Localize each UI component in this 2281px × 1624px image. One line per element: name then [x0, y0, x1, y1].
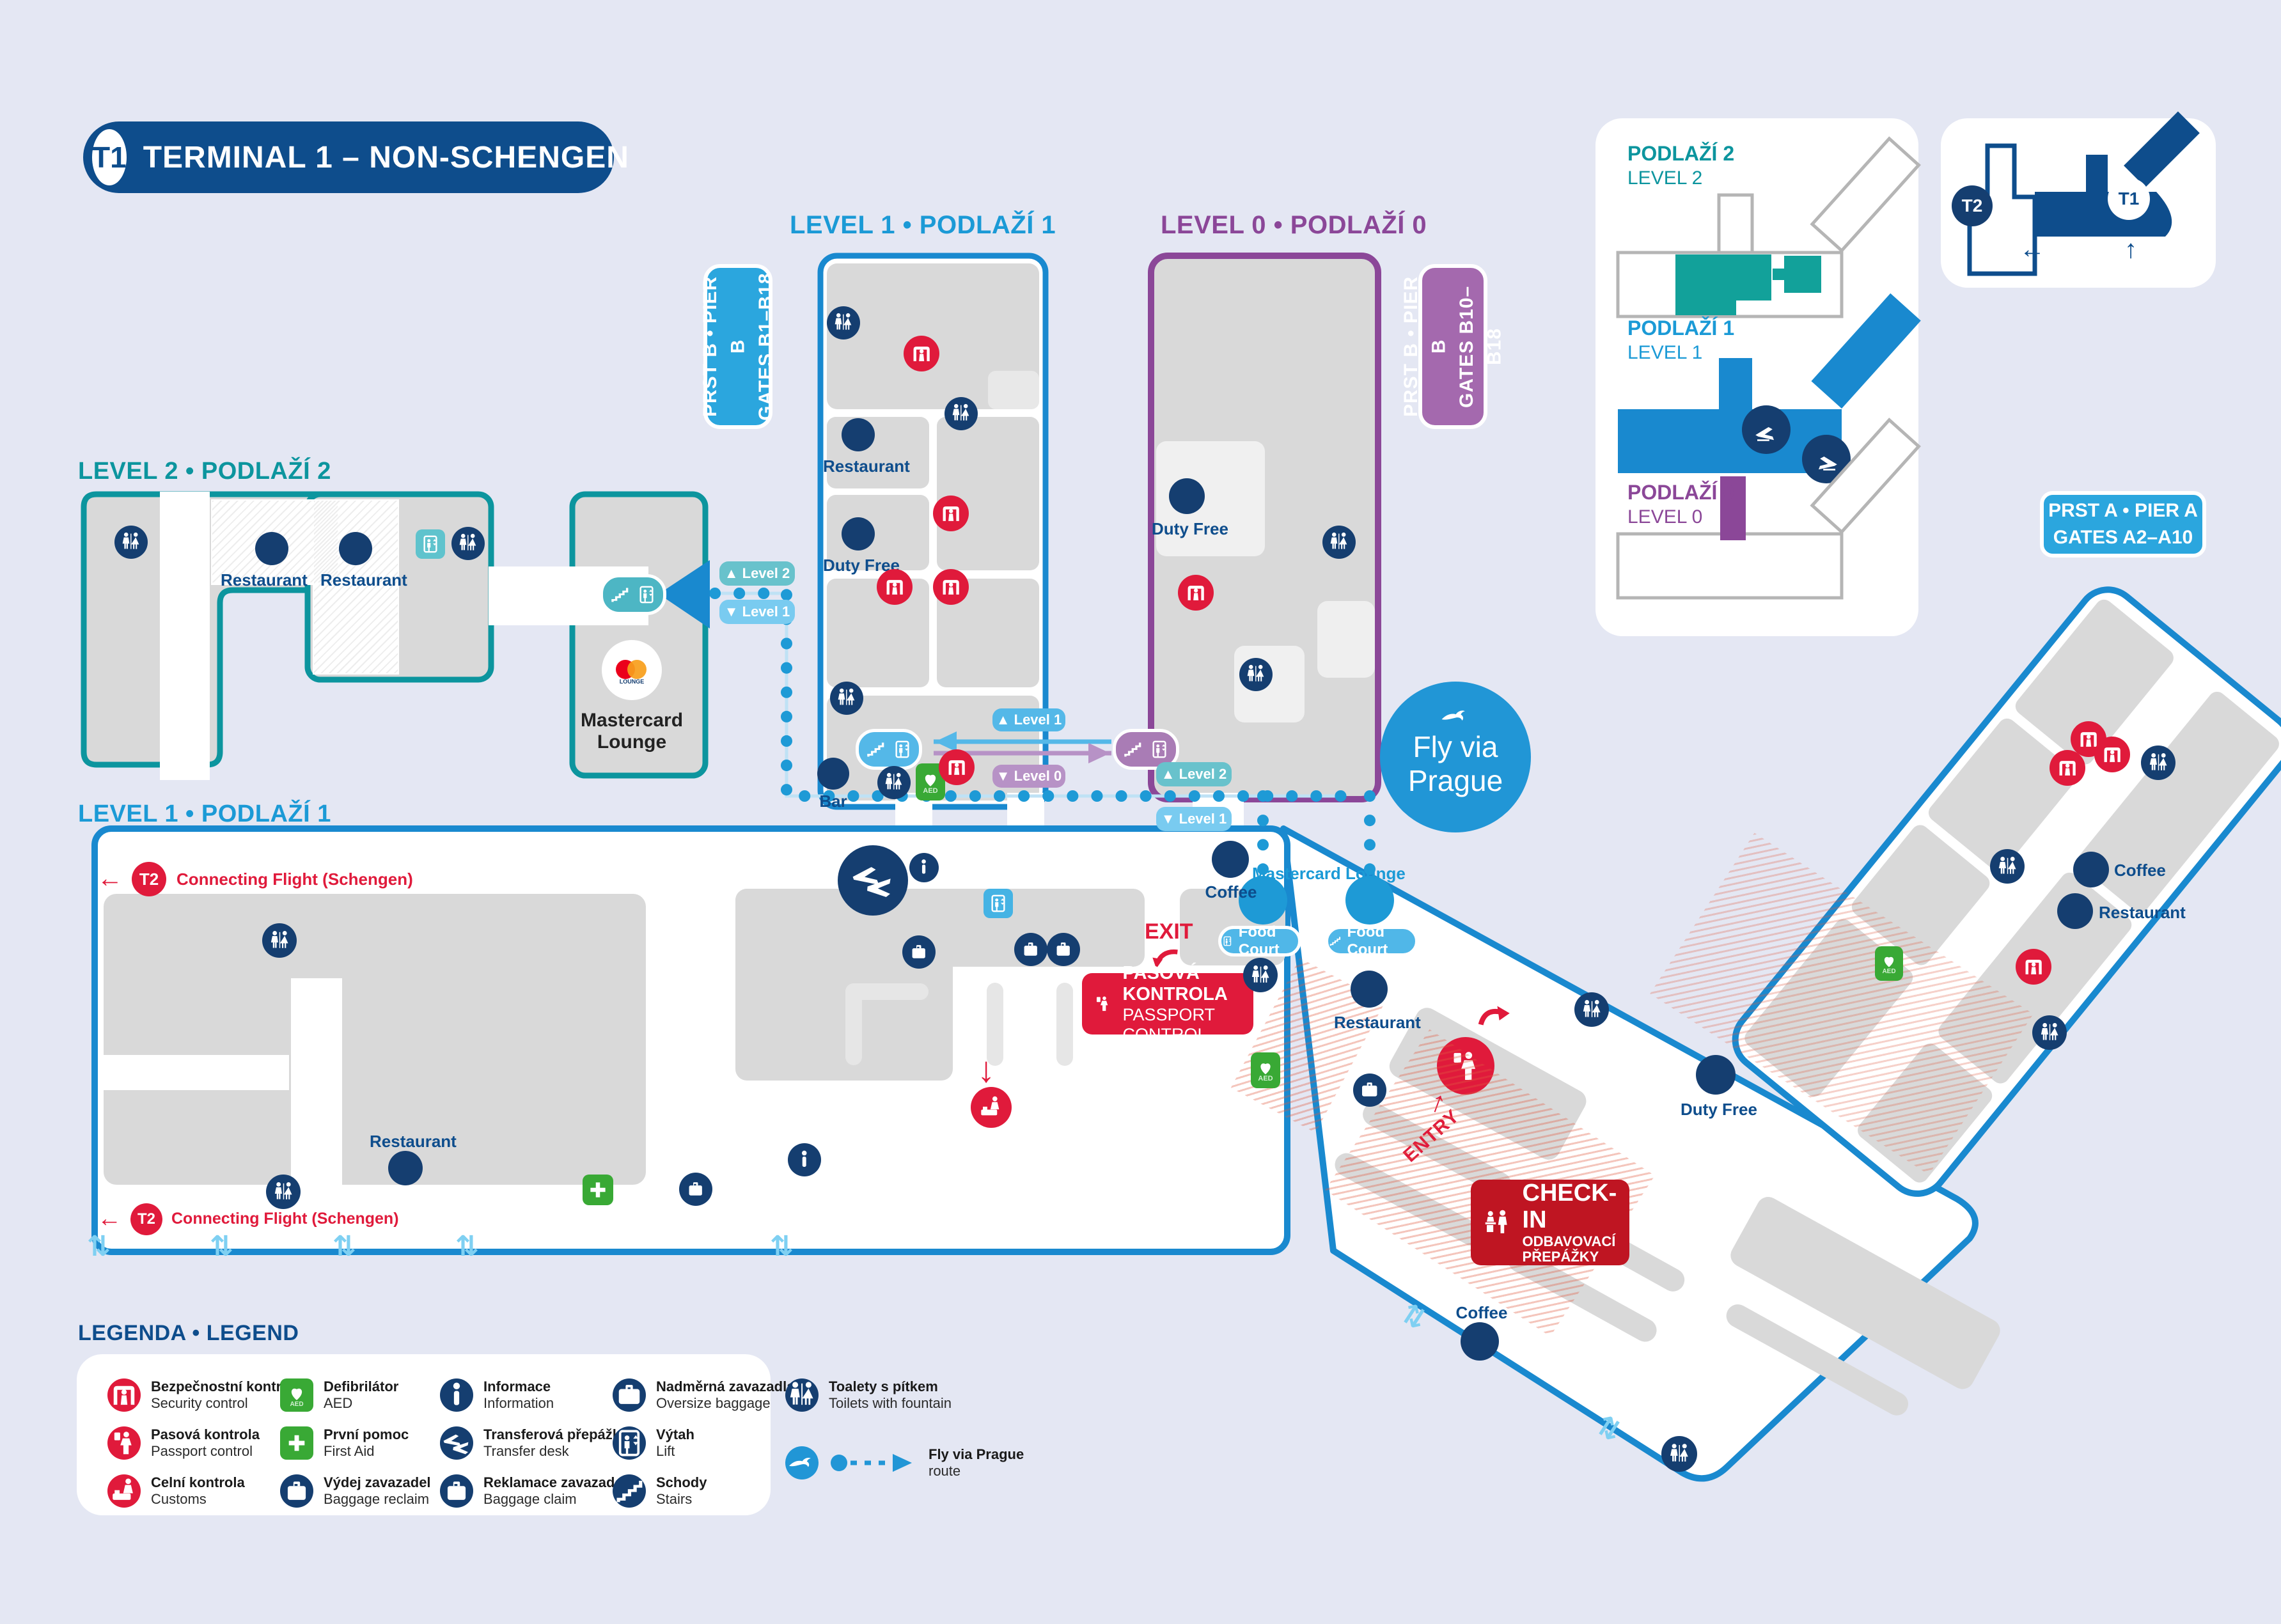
- mastercard-logo: LOUNGE: [609, 653, 655, 685]
- header-level1-main: LEVEL 1 • PODLAŽÍ 1: [78, 800, 331, 828]
- toilets-icon: [2141, 746, 2175, 780]
- toilets-icon: [827, 306, 860, 340]
- baggage-reclaim-icon: [280, 1474, 313, 1508]
- baggage-claim-icon: [1047, 933, 1080, 966]
- security-icon: [877, 569, 913, 605]
- exit-label: EXIT: [1145, 919, 1193, 944]
- customs-icon: [107, 1474, 141, 1508]
- information-icon: [788, 1143, 821, 1176]
- coffee-label: Coffee: [2114, 861, 2166, 880]
- toilets-icon: [451, 527, 485, 560]
- header-level0-pier: LEVEL 0 • PODLAŽÍ 0: [1161, 211, 1427, 240]
- duty-free-dot: [1696, 1055, 1736, 1095]
- transfer-desk-icon: [838, 845, 908, 916]
- check-in-badge: CHECK-IN ODBAVOVACÍ PŘEPÁŽKY: [1471, 1180, 1629, 1265]
- page-title: TERMINAL 1 – NON-SCHENGEN: [143, 140, 629, 175]
- restaurant-dot: [255, 532, 288, 565]
- restaurant-dot: [339, 532, 372, 565]
- legend-item: Toalety s pítkemToilets with fountain: [785, 1378, 952, 1412]
- toilets-icon: [266, 1175, 301, 1209]
- pier-b-level0-badge: PRST B • PIER BGATES B10–B18: [1418, 264, 1487, 429]
- coffee-dot: [1461, 1322, 1499, 1361]
- t2-left-arrow: ←: [97, 1205, 121, 1233]
- t1-logo: T1: [92, 129, 127, 185]
- toilets-icon: [830, 682, 863, 715]
- legend-item: Reklamace zavazadelBaggage claim: [440, 1474, 627, 1508]
- bar-dot: [817, 758, 849, 790]
- route-tag-up-level2: ▲ Level 2: [1156, 762, 1232, 786]
- door-marker: ⇅: [770, 1233, 794, 1261]
- t1-overview-badge: T1: [2108, 178, 2150, 220]
- lift-icon: [984, 889, 1013, 918]
- pier-a-badge: PRST A • PIER AGATES A2–A10: [2040, 491, 2206, 558]
- restaurant-label: Restaurant: [823, 457, 893, 476]
- overview-left-arrow: ←: [2019, 235, 2045, 264]
- security-icon: [2016, 949, 2051, 985]
- restaurant-dot: [1351, 971, 1388, 1008]
- restaurant-dot: [842, 418, 875, 451]
- baggage-claim-icon: [440, 1474, 473, 1508]
- legend-item: První pomocFirst Aid: [280, 1426, 409, 1460]
- oversize-baggage-icon: [1353, 1074, 1386, 1107]
- route-tag-down-level0: ▼ Level 0: [992, 765, 1065, 788]
- restaurant-label: Restaurant: [221, 570, 291, 590]
- arrivals-icon: [1811, 444, 1842, 474]
- route-sample: [829, 1449, 918, 1477]
- toilets-icon: [114, 526, 148, 559]
- legend-item: Nadměrná zavazadlaOversize baggage: [613, 1378, 794, 1412]
- minimap-level0-title: PODLAŽÍ 0: [1627, 481, 1734, 504]
- restaurant-label: Restaurant: [370, 1132, 440, 1152]
- connecting-flight-label: Connecting Flight (Schengen): [176, 870, 413, 889]
- toilets-icon: [2032, 1015, 2067, 1050]
- header-level1-pier: LEVEL 1 • PODLAŽÍ 1: [790, 211, 1056, 240]
- minimap-level1-title: PODLAŽÍ 1: [1627, 316, 1734, 340]
- coffee-dot: [2073, 852, 2109, 887]
- stairs-lift-pier-b-l1: [856, 729, 922, 770]
- security-icon: [933, 496, 969, 531]
- door-marker: ⇅: [333, 1233, 356, 1261]
- connecting-flight-label: Connecting Flight (Schengen): [171, 1210, 399, 1228]
- legend-title: LEGENDA • LEGEND: [78, 1321, 299, 1346]
- passport-control-badge: PASOVÁ KONTROLA PASSPORT CONTROL: [1082, 973, 1253, 1035]
- restaurant-dot: [2057, 893, 2093, 929]
- toilets-icon: [1243, 958, 1278, 992]
- t2-badge: T2: [130, 1203, 162, 1235]
- down-arrow: ↓: [977, 1049, 995, 1090]
- legend-item-route: Fly via Pragueroute: [785, 1446, 1024, 1480]
- lift-icon: [613, 1426, 646, 1460]
- legend-item: Bezpečnostní kontrolaSecurity control: [107, 1378, 302, 1412]
- restaurant-dot: [388, 1151, 423, 1185]
- toilets-icon: [945, 397, 978, 430]
- first-aid-icon: [280, 1426, 313, 1460]
- stairs-icon: [613, 1474, 646, 1508]
- oversize-baggage-icon: [613, 1378, 646, 1412]
- toilets-icon: [262, 923, 297, 958]
- t2-badge: T2: [132, 862, 166, 896]
- terminal-map: T1 TERMINAL 1 – NON-SCHENGEN LEVEL 1 • P…: [0, 0, 2281, 1624]
- fly-via-prague-icon: [785, 1446, 819, 1480]
- legend-item: SchodyStairs: [613, 1474, 707, 1508]
- bar-label: Bar: [804, 792, 862, 811]
- first-aid-icon: [583, 1175, 613, 1205]
- door-marker: ⇅: [87, 1233, 111, 1261]
- customs-icon: [971, 1087, 1012, 1128]
- minimap-level0-subtitle: LEVEL 0: [1627, 506, 1702, 529]
- baggage-reclaim-icon: [1014, 933, 1047, 966]
- duty-free-dot: [1169, 478, 1205, 514]
- legend-item: VýtahLift: [613, 1426, 694, 1460]
- duty-free-dot: [842, 517, 875, 550]
- fly-via-prague-circle: Fly viaPrague: [1380, 682, 1531, 832]
- minimap-level2-subtitle: LEVEL 2: [1627, 168, 1702, 190]
- route-tag-down-level1: ▼ Level 1: [719, 600, 795, 624]
- toilets-icon: [1239, 658, 1273, 691]
- t2-left-arrow: ←: [97, 864, 123, 893]
- baggage-reclaim-icon: [902, 935, 936, 969]
- legend-item: Transferová přepážkaTransfer desk: [440, 1426, 628, 1460]
- door-marker: ⇅: [210, 1233, 233, 1261]
- minimap-level1-subtitle: LEVEL 1: [1627, 342, 1702, 364]
- overview-up-arrow: ↑: [2124, 235, 2137, 264]
- restaurant-label: Restaurant: [1334, 1013, 1404, 1033]
- security-icon: [2094, 737, 2130, 772]
- food-court-stairs-pill: Food Court: [1325, 926, 1418, 956]
- aed-icon: AED: [1251, 1052, 1280, 1088]
- restaurant-label: Restaurant: [2099, 903, 2186, 923]
- mastercard-lounge-route-label: Mastercard Lounge: [1252, 864, 1380, 884]
- security-icon: [933, 569, 969, 605]
- restaurant-label: Restaurant: [320, 570, 391, 590]
- legend-item: Výdej zavazadelBaggage reclaim: [280, 1474, 431, 1508]
- entry-curved-arrow: [1475, 1001, 1512, 1029]
- title-badge: T1 TERMINAL 1 – NON-SCHENGEN: [83, 121, 614, 193]
- passport-control-icon: [107, 1426, 141, 1460]
- route-tag-up-level2: ▲ Level 2: [719, 561, 795, 586]
- security-icon: [2050, 750, 2085, 786]
- mastercard-lounge-label: Mastercard Lounge: [549, 710, 715, 753]
- toilets-icon: [877, 766, 911, 799]
- security-icon: [904, 336, 939, 371]
- toilets-fountain-icon: [785, 1378, 819, 1412]
- t2-overview-badge: T2: [1952, 185, 1993, 226]
- departures-icon: [1751, 414, 1782, 445]
- security-icon: [107, 1378, 141, 1412]
- minimap-level2-title: PODLAŽÍ 2: [1627, 142, 1734, 166]
- toilets-icon: [1661, 1436, 1697, 1472]
- security-icon: [939, 749, 975, 785]
- fly-via-prague-bird-icon: [1420, 698, 1491, 734]
- route-tag-down-level1: ▼ Level 1: [1156, 807, 1232, 831]
- door-marker: ⇅: [455, 1233, 479, 1261]
- information-icon: [440, 1378, 473, 1412]
- coffee-dot: [1212, 841, 1249, 878]
- svg-text:LOUNGE: LOUNGE: [620, 678, 645, 685]
- coffee-label: Coffee: [1446, 1303, 1517, 1323]
- check-in-icon: [1481, 1203, 1514, 1242]
- minimap-card1: [1595, 118, 1921, 636]
- legend-item: Celní kontrolaCustoms: [107, 1474, 245, 1508]
- legend-item: InformaceInformation: [440, 1378, 554, 1412]
- stairs-lift-level2: [600, 574, 666, 615]
- duty-free-label: Duty Free: [1681, 1100, 1751, 1120]
- legend-item: AED DefibrilátorAED: [280, 1378, 398, 1412]
- food-court-lift-pill: Food Court: [1218, 926, 1301, 956]
- aed-icon: AED: [1875, 946, 1903, 981]
- baggage-reclaim-icon: [679, 1173, 712, 1206]
- aed-icon: AED: [280, 1378, 313, 1412]
- toilets-icon: [1990, 849, 2025, 884]
- duty-free-label: Duty Free: [1152, 519, 1222, 539]
- legend-item: Pasová kontrolaPassport control: [107, 1426, 260, 1460]
- pier-b-level1-badge: PRST B • PIER BGATES B1–B18: [703, 264, 772, 429]
- route-tag-up-level1: ▲ Level 1: [992, 708, 1065, 731]
- lift-icon: [416, 529, 445, 559]
- transfer-desk-icon: [440, 1426, 473, 1460]
- header-level2: LEVEL 2 • PODLAŽÍ 2: [78, 458, 331, 485]
- toilets-icon: [1322, 526, 1356, 559]
- information-icon: [909, 853, 939, 882]
- security-icon: [1178, 575, 1214, 611]
- coffee-label: Coffee: [1196, 882, 1266, 902]
- legend-panel: Bezpečnostní kontrolaSecurity control Pa…: [77, 1354, 771, 1515]
- toilets-icon: [1574, 992, 1609, 1027]
- passport-control-icon: [1092, 987, 1113, 1020]
